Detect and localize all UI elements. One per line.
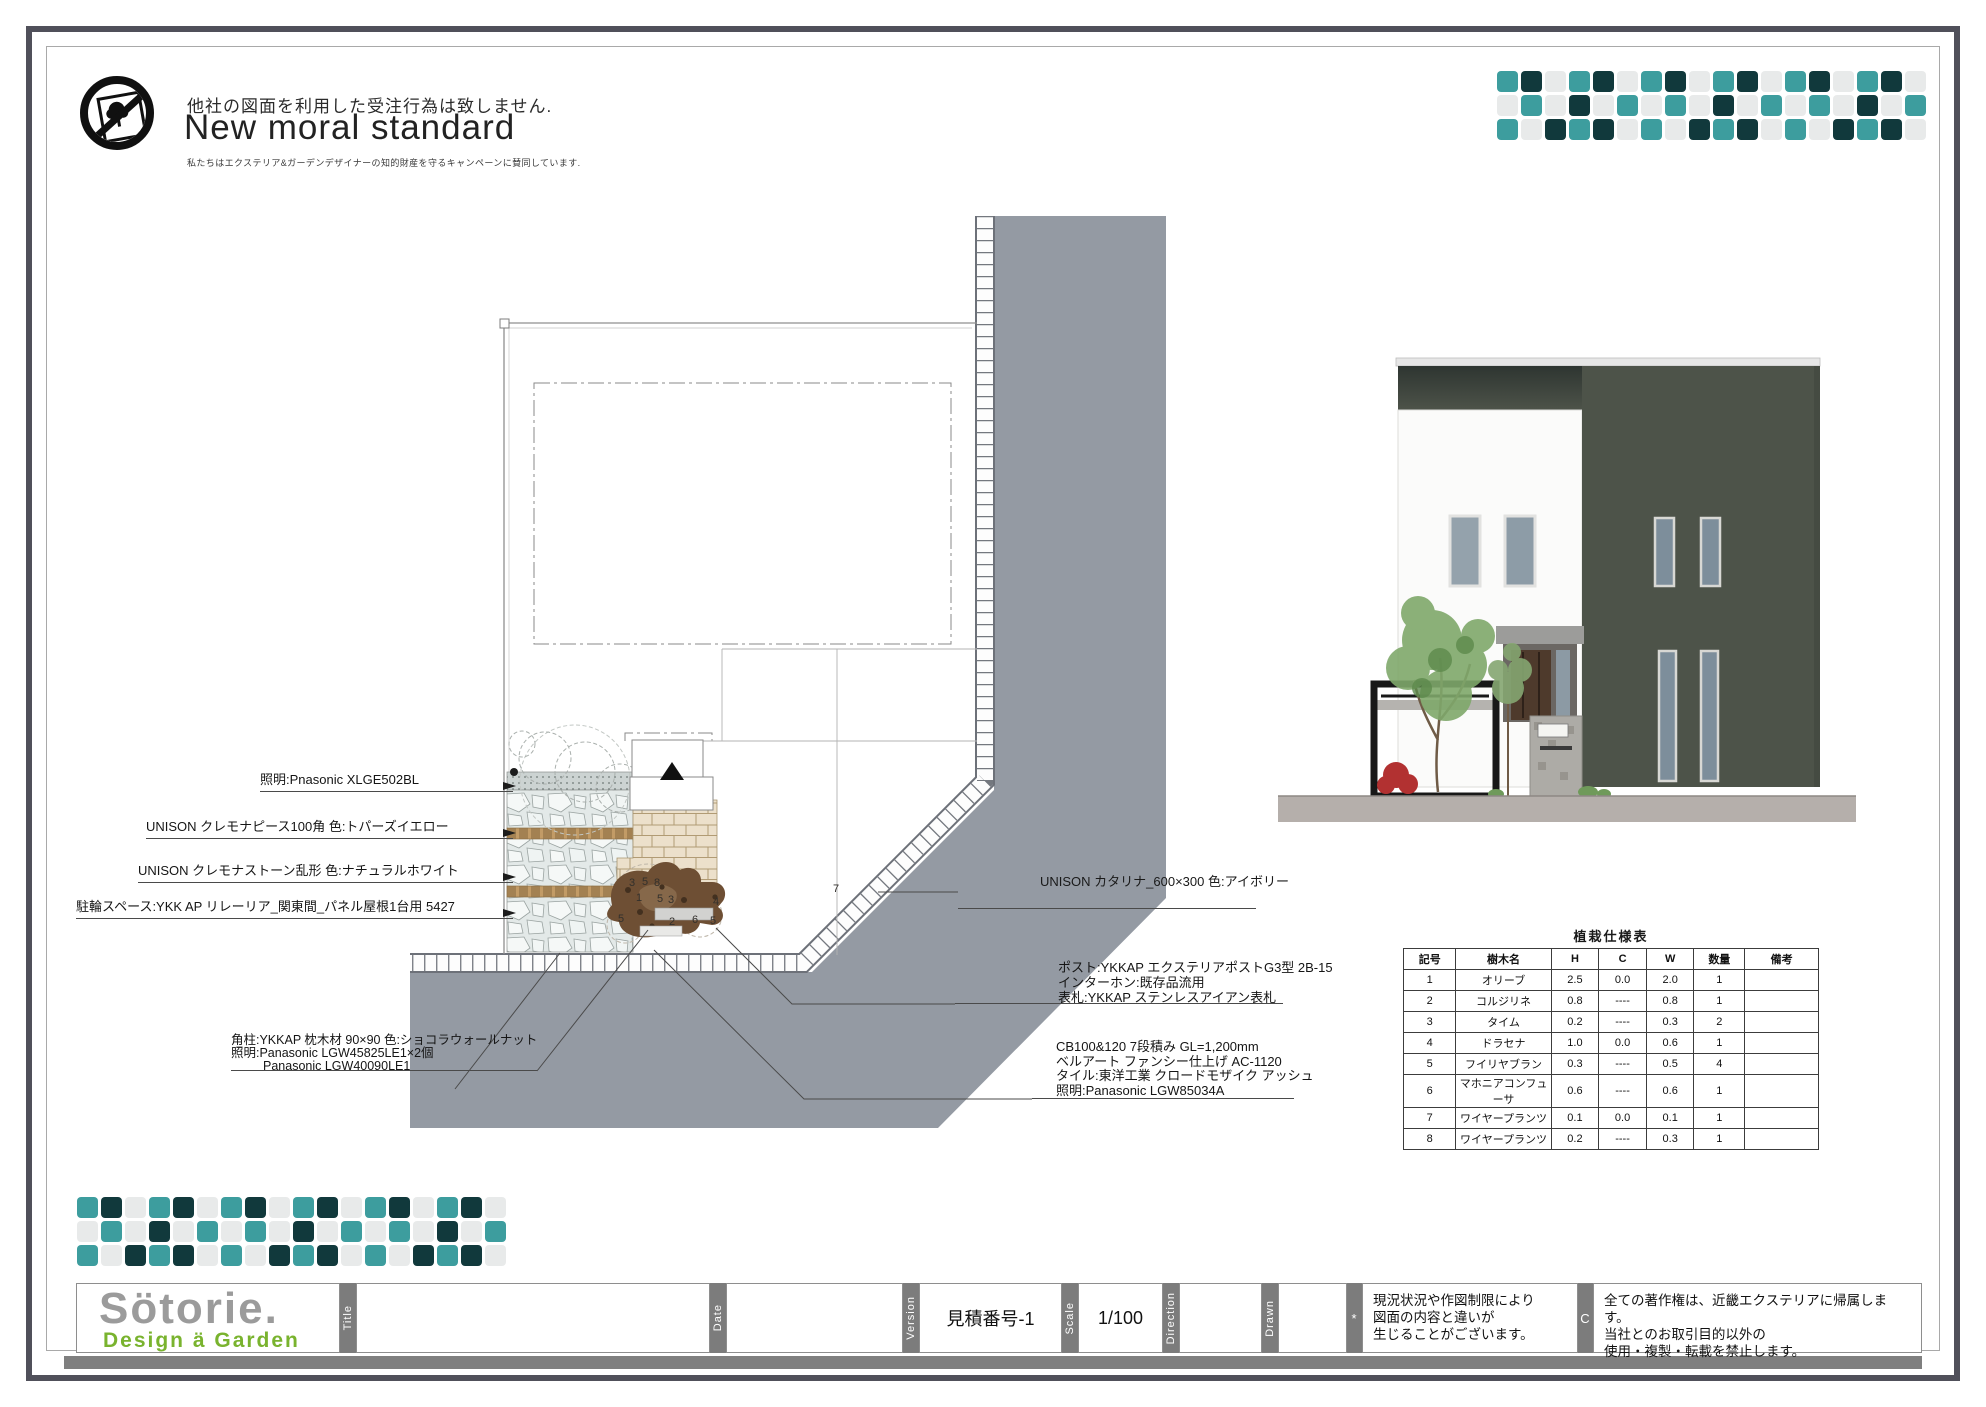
mosaic-tile bbox=[1521, 119, 1542, 140]
table-cell: 0.3 bbox=[1551, 1054, 1599, 1075]
mosaic-tile bbox=[245, 1197, 266, 1218]
table-cell: 0.2 bbox=[1551, 1012, 1599, 1033]
titleblock-copyright: 全ての著作権は、近畿エクステリアに帰属します。 当社とのお取引目的以外の 使用・… bbox=[1593, 1283, 1922, 1353]
post-slot bbox=[1540, 746, 1572, 750]
mosaic-tile bbox=[173, 1197, 194, 1218]
mosaic-tile bbox=[1809, 95, 1830, 116]
mosaic-tile bbox=[341, 1245, 362, 1266]
mosaic-tile bbox=[1881, 119, 1902, 140]
table-cell: 0.0 bbox=[1599, 1033, 1647, 1054]
table-cell: 1 bbox=[1694, 1033, 1745, 1054]
table-row: 4ドラセナ1.00.00.61 bbox=[1404, 1033, 1819, 1054]
mosaic-tile bbox=[365, 1197, 386, 1218]
mosaic-tile bbox=[1761, 95, 1782, 116]
mosaic-tile bbox=[1617, 95, 1638, 116]
titleblock-label-date: Date bbox=[710, 1283, 726, 1353]
table-cell: 0.6 bbox=[1551, 1075, 1599, 1108]
mosaic-tile bbox=[101, 1245, 122, 1266]
table-row: 1オリーブ2.50.02.01 bbox=[1404, 970, 1819, 991]
site-plan-drawing: 358153452657 bbox=[380, 200, 1300, 1160]
table-cell: 1 bbox=[1694, 1108, 1745, 1129]
table-cell bbox=[1745, 1033, 1819, 1054]
mosaic-tile bbox=[269, 1245, 290, 1266]
mosaic-tile bbox=[1689, 71, 1710, 92]
table-cell: 4 bbox=[1694, 1054, 1745, 1075]
mosaic-tile bbox=[1617, 71, 1638, 92]
plant-number-label: 2 bbox=[669, 916, 675, 928]
mosaic-row bbox=[77, 1197, 506, 1218]
mosaic-tile bbox=[1857, 71, 1878, 92]
mosaic-tile bbox=[485, 1197, 506, 1218]
mosaic-tile bbox=[1665, 119, 1686, 140]
mosaic-tile bbox=[221, 1221, 242, 1242]
mosaic-tile bbox=[197, 1245, 218, 1266]
annotation-cremona-piece: UNISON クレモナピース100角 色:トパーズイエロー bbox=[146, 816, 513, 839]
mosaic-tile bbox=[1737, 119, 1758, 140]
gate-pillar bbox=[1530, 716, 1582, 796]
mosaic-tile bbox=[293, 1197, 314, 1218]
table-cell: 7 bbox=[1404, 1108, 1456, 1129]
mosaic-tile bbox=[1857, 95, 1878, 116]
mosaic-tile bbox=[1833, 95, 1854, 116]
annotation-katarina: UNISON カタリナ_600×300 色:アイボリー bbox=[958, 888, 1256, 909]
mosaic-tile bbox=[1521, 95, 1542, 116]
mosaic-tile bbox=[1905, 95, 1926, 116]
mosaic-row bbox=[1497, 95, 1926, 116]
plant-number-label: 5 bbox=[642, 876, 648, 888]
roof-fascia bbox=[1396, 358, 1820, 366]
mosaic-tile bbox=[1569, 95, 1590, 116]
mosaic-tile bbox=[389, 1221, 410, 1242]
table-cell bbox=[1745, 970, 1819, 991]
flagstone-paving bbox=[507, 790, 633, 952]
table-cell: マホニアコンフューサ bbox=[1456, 1075, 1551, 1108]
titleblock-note: 現況状況や作図制限により 図面の内容と違いが 生じることがございます。 bbox=[1362, 1283, 1578, 1353]
table-header-cell: 数量 bbox=[1694, 949, 1745, 970]
table-row: 5フイリヤブラン0.3----0.54 bbox=[1404, 1054, 1819, 1075]
annotation-pillar-block: 角柱:YKKAP 枕木材 90×90 色:ショコラウォールナット 照明:Pana… bbox=[231, 1034, 537, 1073]
table-cell: タイム bbox=[1456, 1012, 1551, 1033]
mosaic-tile bbox=[149, 1197, 170, 1218]
table-cell: ドラセナ bbox=[1456, 1033, 1551, 1054]
annotation-cb-underline bbox=[1032, 1098, 1294, 1099]
table-cell: 5 bbox=[1404, 1054, 1456, 1075]
annotation-bicycle-space: 駐輪スペース:YKK AP リレーリア_関東間_パネル屋根1台用 5427 bbox=[76, 896, 513, 919]
plant-number-label: 3 bbox=[668, 894, 674, 906]
titleblock-field-drawn bbox=[1278, 1283, 1347, 1353]
mosaic-tile bbox=[77, 1197, 98, 1218]
mosaic-tile bbox=[1761, 119, 1782, 140]
table-cell: 0.6 bbox=[1646, 1033, 1694, 1054]
mosaic-tile bbox=[101, 1197, 122, 1218]
table-cell: フイリヤブラン bbox=[1456, 1054, 1551, 1075]
mosaic-tile bbox=[1545, 119, 1566, 140]
mosaic-tile bbox=[1785, 119, 1806, 140]
table-cell: 0.8 bbox=[1551, 991, 1599, 1012]
mosaic-tile bbox=[461, 1221, 482, 1242]
table-cell: オリーブ bbox=[1456, 970, 1551, 991]
table-cell: 0.8 bbox=[1646, 991, 1694, 1012]
mosaic-tile bbox=[1881, 95, 1902, 116]
table-cell: 0.6 bbox=[1646, 1075, 1694, 1108]
mosaic-tile bbox=[1713, 95, 1734, 116]
mosaic-tile bbox=[125, 1245, 146, 1266]
mosaic-tile bbox=[389, 1245, 410, 1266]
titleblock-field-title bbox=[356, 1283, 710, 1353]
plant-number-label: 7 bbox=[833, 883, 839, 895]
mosaic-tile bbox=[341, 1221, 362, 1242]
mosaic-tile bbox=[1737, 95, 1758, 116]
mosaic-tile bbox=[1497, 71, 1518, 92]
mosaic-tile bbox=[1569, 119, 1590, 140]
mosaic-tile bbox=[1833, 119, 1854, 140]
titleblock-field-version: 見積番号-1 bbox=[919, 1283, 1062, 1353]
mosaic-tile bbox=[125, 1197, 146, 1218]
titleblock-label-version: Version bbox=[903, 1283, 919, 1353]
mosaic-tile bbox=[1761, 71, 1782, 92]
plant-number-label: 8 bbox=[654, 877, 660, 889]
mosaic-tile bbox=[1713, 71, 1734, 92]
table-cell: 2.0 bbox=[1646, 970, 1694, 991]
annotation-lighting-xlge: 照明:Pnasonic XLGE502BL bbox=[260, 769, 513, 792]
mosaic-tile bbox=[1785, 95, 1806, 116]
table-cell bbox=[1745, 1129, 1819, 1150]
mosaic-tile bbox=[1713, 119, 1734, 140]
table-cell: 0.5 bbox=[1646, 1054, 1694, 1075]
ground-strip bbox=[1278, 796, 1856, 822]
table-cell: ---- bbox=[1599, 1075, 1647, 1108]
mosaic-tile bbox=[365, 1245, 386, 1266]
mosaic-tile bbox=[269, 1197, 290, 1218]
mosaic-tile bbox=[1689, 119, 1710, 140]
table-cell bbox=[1745, 1012, 1819, 1033]
titleblock-label-note: * bbox=[1347, 1283, 1362, 1353]
mosaic-tile bbox=[1905, 71, 1926, 92]
table-row: 7ワイヤープランツ0.10.00.11 bbox=[1404, 1108, 1819, 1129]
plant-number-label: 5 bbox=[710, 915, 716, 927]
mosaic-tile bbox=[1785, 71, 1806, 92]
mosaic-tile bbox=[1881, 71, 1902, 92]
mosaic-tile bbox=[197, 1221, 218, 1242]
mosaic-tile bbox=[437, 1197, 458, 1218]
table-cell: 2.5 bbox=[1551, 970, 1599, 991]
table-cell bbox=[1745, 1075, 1819, 1108]
table-cell: 1 bbox=[1404, 970, 1456, 991]
table-row: 6マホニアコンフューサ0.6----0.61 bbox=[1404, 1075, 1819, 1108]
mosaic-tile bbox=[77, 1245, 98, 1266]
mosaic-tile bbox=[1665, 71, 1686, 92]
mosaic-row bbox=[1497, 71, 1926, 92]
nameplate bbox=[1538, 724, 1568, 737]
mosaic-tile bbox=[173, 1221, 194, 1242]
mosaic-tile bbox=[389, 1197, 410, 1218]
mosaic-tile bbox=[317, 1221, 338, 1242]
plant-number-label: 1 bbox=[636, 892, 642, 904]
mosaic-tile bbox=[1641, 119, 1662, 140]
table-header-cell: 備考 bbox=[1745, 949, 1819, 970]
table-cell: ワイヤープランツ bbox=[1456, 1129, 1551, 1150]
mosaic-row bbox=[1497, 119, 1926, 140]
mosaic-tile bbox=[173, 1245, 194, 1266]
table-header-cell: 記号 bbox=[1404, 949, 1456, 970]
mosaic-tile bbox=[437, 1245, 458, 1266]
mosaic-tile bbox=[485, 1221, 506, 1242]
building-outline-dashdot bbox=[534, 383, 951, 644]
table-row: 3タイム0.2----0.32 bbox=[1404, 1012, 1819, 1033]
planting-table-header: 記号樹木名HCW数量備考 bbox=[1404, 949, 1819, 970]
mosaic-tile bbox=[413, 1245, 434, 1266]
table-cell: 0.0 bbox=[1599, 1108, 1647, 1129]
table-cell: 0.3 bbox=[1646, 1129, 1694, 1150]
mosaic-tile bbox=[197, 1197, 218, 1218]
annotation-cremona-stone: UNISON クレモナストーン乱形 色:ナチュラルホワイト bbox=[138, 860, 513, 883]
table-cell: ワイヤープランツ bbox=[1456, 1108, 1551, 1129]
mosaic-tile bbox=[1521, 71, 1542, 92]
mosaic-tile bbox=[269, 1221, 290, 1242]
planting-table-title: 植栽仕様表 bbox=[1403, 926, 1819, 945]
mosaic-tile bbox=[1689, 95, 1710, 116]
mosaic-tile bbox=[101, 1221, 122, 1242]
mosaic-tile bbox=[1905, 119, 1926, 140]
table-cell: 1 bbox=[1694, 1129, 1745, 1150]
mosaic-tile bbox=[1545, 71, 1566, 92]
mosaic-tile bbox=[437, 1221, 458, 1242]
table-header-cell: W bbox=[1646, 949, 1694, 970]
mosaic-tile bbox=[221, 1245, 242, 1266]
brand-title: New moral standard bbox=[184, 108, 515, 148]
table-cell: 1.0 bbox=[1551, 1033, 1599, 1054]
mosaic-tile bbox=[1497, 119, 1518, 140]
mosaic-tile bbox=[1617, 119, 1638, 140]
mosaic-tile bbox=[485, 1245, 506, 1266]
house-elevation-rendering bbox=[1260, 330, 1880, 840]
plant-number-label: 3 bbox=[629, 877, 635, 889]
table-cell: 2 bbox=[1694, 1012, 1745, 1033]
table-header-cell: H bbox=[1551, 949, 1599, 970]
table-cell bbox=[1745, 991, 1819, 1012]
titleblock-logo-cell: Sötorie. Design ä Garden bbox=[76, 1283, 340, 1353]
mosaic-tile bbox=[1665, 95, 1686, 116]
road-surface bbox=[410, 216, 1166, 1128]
plant-number-label: 4 bbox=[713, 896, 719, 908]
mosaic-tile bbox=[293, 1221, 314, 1242]
sotorie-logo: Sötorie. bbox=[99, 1284, 279, 1334]
mosaic-tile bbox=[1497, 95, 1518, 116]
annotation-pillar-underline bbox=[231, 1070, 537, 1071]
mosaic-decoration-bottom-left bbox=[77, 1197, 506, 1266]
table-cell: 1 bbox=[1694, 970, 1745, 991]
table-cell: 1 bbox=[1694, 1075, 1745, 1108]
table-row: 2コルジリネ0.8----0.81 bbox=[1404, 991, 1819, 1012]
mosaic-tile bbox=[149, 1245, 170, 1266]
table-header-cell: 樹木名 bbox=[1456, 949, 1551, 970]
mosaic-tile bbox=[317, 1245, 338, 1266]
annotation-post-underline bbox=[955, 1003, 1283, 1004]
mosaic-tile bbox=[1641, 95, 1662, 116]
table-cell: コルジリネ bbox=[1456, 991, 1551, 1012]
table-cell: 2 bbox=[1404, 991, 1456, 1012]
titleblock-label-title: Title bbox=[340, 1283, 356, 1353]
plant-number-label: 5 bbox=[657, 893, 663, 905]
table-cell: 6 bbox=[1404, 1075, 1456, 1108]
mosaic-tile bbox=[1569, 71, 1590, 92]
mosaic-tile bbox=[341, 1197, 362, 1218]
titleblock-field-scale: 1/100 bbox=[1078, 1283, 1163, 1353]
mosaic-tile bbox=[413, 1221, 434, 1242]
mosaic-tile bbox=[1737, 71, 1758, 92]
table-header-cell: C bbox=[1599, 949, 1647, 970]
mosaic-tile bbox=[317, 1197, 338, 1218]
planting-table-body: 1オリーブ2.50.02.012コルジリネ0.8----0.813タイム0.2-… bbox=[1404, 970, 1819, 1150]
table-cell: 8 bbox=[1404, 1129, 1456, 1150]
table-cell: 0.1 bbox=[1646, 1108, 1694, 1129]
table-cell bbox=[1745, 1108, 1819, 1129]
table-cell bbox=[1745, 1054, 1819, 1075]
mosaic-tile bbox=[77, 1221, 98, 1242]
mosaic-tile bbox=[1857, 119, 1878, 140]
mosaic-tile bbox=[149, 1221, 170, 1242]
titleblock-field-date bbox=[726, 1283, 903, 1353]
table-cell: ---- bbox=[1599, 1012, 1647, 1033]
table-cell: ---- bbox=[1599, 1129, 1647, 1150]
table-row: 8ワイヤープランツ0.2----0.31 bbox=[1404, 1129, 1819, 1150]
titleblock-label-drawn: Drawn bbox=[1262, 1283, 1278, 1353]
titleblock-label-direction: Direction bbox=[1163, 1283, 1179, 1353]
mosaic-tile bbox=[125, 1221, 146, 1242]
table-cell: 3 bbox=[1404, 1012, 1456, 1033]
annotation-post-block: ポスト:YKKAP エクステリアポストG3型 2B-15 インターホン:既存品流… bbox=[1058, 960, 1333, 1005]
table-cell: 1 bbox=[1694, 991, 1745, 1012]
mosaic-row bbox=[77, 1245, 506, 1266]
titleblock-field-direction bbox=[1179, 1283, 1262, 1353]
plant-number-label: 5 bbox=[618, 913, 624, 925]
table-cell: ---- bbox=[1599, 991, 1647, 1012]
no-copy-logo-icon bbox=[80, 76, 154, 150]
table-cell: 0.3 bbox=[1646, 1012, 1694, 1033]
table-cell: 4 bbox=[1404, 1033, 1456, 1054]
table-cell: ---- bbox=[1599, 1054, 1647, 1075]
mosaic-tile bbox=[245, 1221, 266, 1242]
mosaic-decoration-top-right bbox=[1497, 71, 1926, 140]
sotorie-tagline: Design ä Garden bbox=[103, 1329, 300, 1353]
table-cell: 0.1 bbox=[1551, 1108, 1599, 1129]
mosaic-tile bbox=[461, 1197, 482, 1218]
titleblock-label-scale: Scale bbox=[1062, 1283, 1078, 1353]
mosaic-tile bbox=[245, 1245, 266, 1266]
mosaic-tile bbox=[1833, 71, 1854, 92]
mosaic-tile bbox=[365, 1221, 386, 1242]
plant-number-label: 6 bbox=[692, 914, 698, 926]
mosaic-tile bbox=[1593, 71, 1614, 92]
brand-subtitle: 私たちはエクステリア&ガーデンデザイナーの知的財産を守るキャンペーンに賛同してい… bbox=[187, 156, 581, 169]
mosaic-tile bbox=[1593, 95, 1614, 116]
upper-dark-band bbox=[1398, 366, 1582, 410]
planting-spec-table: 植栽仕様表 記号樹木名HCW数量備考 1オリーブ2.50.02.012コルジリネ… bbox=[1403, 926, 1819, 1150]
table-cell: 0.2 bbox=[1551, 1129, 1599, 1150]
mosaic-tile bbox=[1545, 95, 1566, 116]
entrance-porch bbox=[630, 740, 713, 810]
mosaic-tile bbox=[1641, 71, 1662, 92]
annotation-cb-block: CB100&120 7段積み GL=1,200mm ベルアート ファンシー仕上げ… bbox=[1056, 1040, 1314, 1098]
mosaic-tile bbox=[1809, 71, 1830, 92]
mosaic-tile bbox=[1593, 119, 1614, 140]
mosaic-tile bbox=[461, 1245, 482, 1266]
titleblock-label-copyright: C bbox=[1578, 1283, 1593, 1353]
mosaic-row bbox=[77, 1221, 506, 1242]
mosaic-tile bbox=[293, 1245, 314, 1266]
mosaic-tile bbox=[413, 1197, 434, 1218]
table-cell: 0.0 bbox=[1599, 970, 1647, 991]
mosaic-tile bbox=[1809, 119, 1830, 140]
mosaic-tile bbox=[221, 1197, 242, 1218]
